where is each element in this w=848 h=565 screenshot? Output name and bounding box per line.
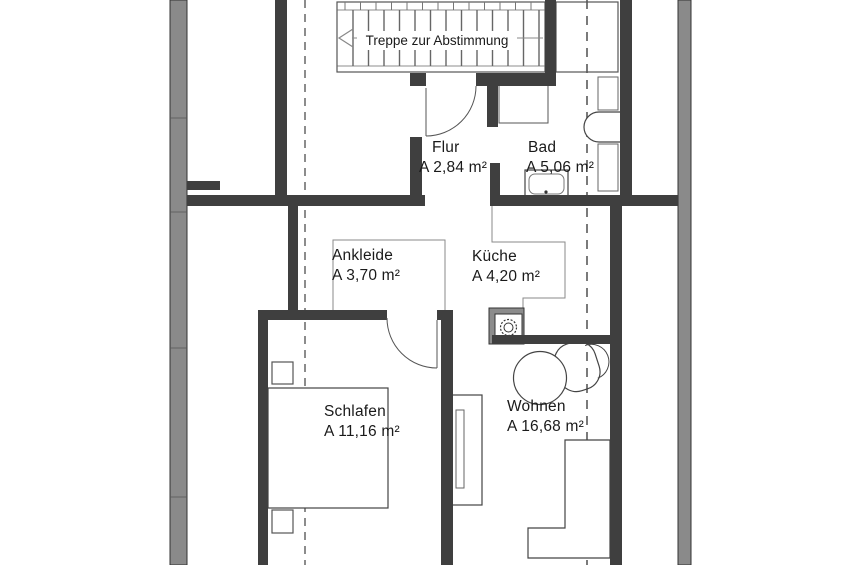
stair-note-label: Treppe zur Abstimmung — [357, 31, 517, 50]
room-name: Küche — [472, 248, 517, 265]
room-area: A 5,06 m² — [526, 158, 594, 178]
room-area: A 3,70 m² — [332, 266, 400, 286]
shower — [499, 85, 548, 123]
room-label-ankleide: Ankleide A 3,70 m² — [332, 246, 400, 286]
nightstand-bottom — [272, 510, 293, 533]
room-label-schlafen: Schlafen A 11,16 m² — [324, 402, 400, 442]
room-name: Bad — [528, 139, 556, 156]
room-label-wohnen: Wohnen A 16,68 m² — [507, 397, 584, 437]
room-area: A 16,68 m² — [507, 417, 584, 437]
cabinet-lower — [598, 144, 618, 191]
exterior-wall-left — [170, 0, 187, 565]
cabinet-upper — [598, 77, 618, 110]
door-schlafen — [387, 318, 437, 368]
wardrobe — [452, 395, 482, 505]
door-flur — [426, 86, 476, 136]
nightstand-top — [272, 362, 293, 384]
room-name: Wohnen — [507, 398, 566, 415]
door-arc-schlafen — [387, 318, 437, 368]
room-area: A 2,84 m² — [419, 158, 487, 178]
room-area: A 4,20 m² — [472, 267, 540, 287]
room-label-bad: Bad A 5,06 m² — [526, 138, 594, 178]
sofa — [528, 440, 610, 558]
room-name: Flur — [432, 139, 460, 156]
room-area: A 11,16 m² — [324, 422, 400, 442]
room-name: Ankleide — [332, 247, 393, 264]
room-name: Schlafen — [324, 403, 386, 420]
exterior-wall-right — [678, 0, 691, 565]
floor-plan-drawing — [0, 0, 848, 565]
door-arc-flur — [426, 86, 476, 136]
room-label-kueche: Küche A 4,20 m² — [472, 247, 540, 287]
room-label-flur: Flur A 2,84 m² — [419, 138, 487, 178]
floor-plan: Treppe zur Abstimmung Flur A 2,84 m² Bad… — [0, 0, 848, 565]
